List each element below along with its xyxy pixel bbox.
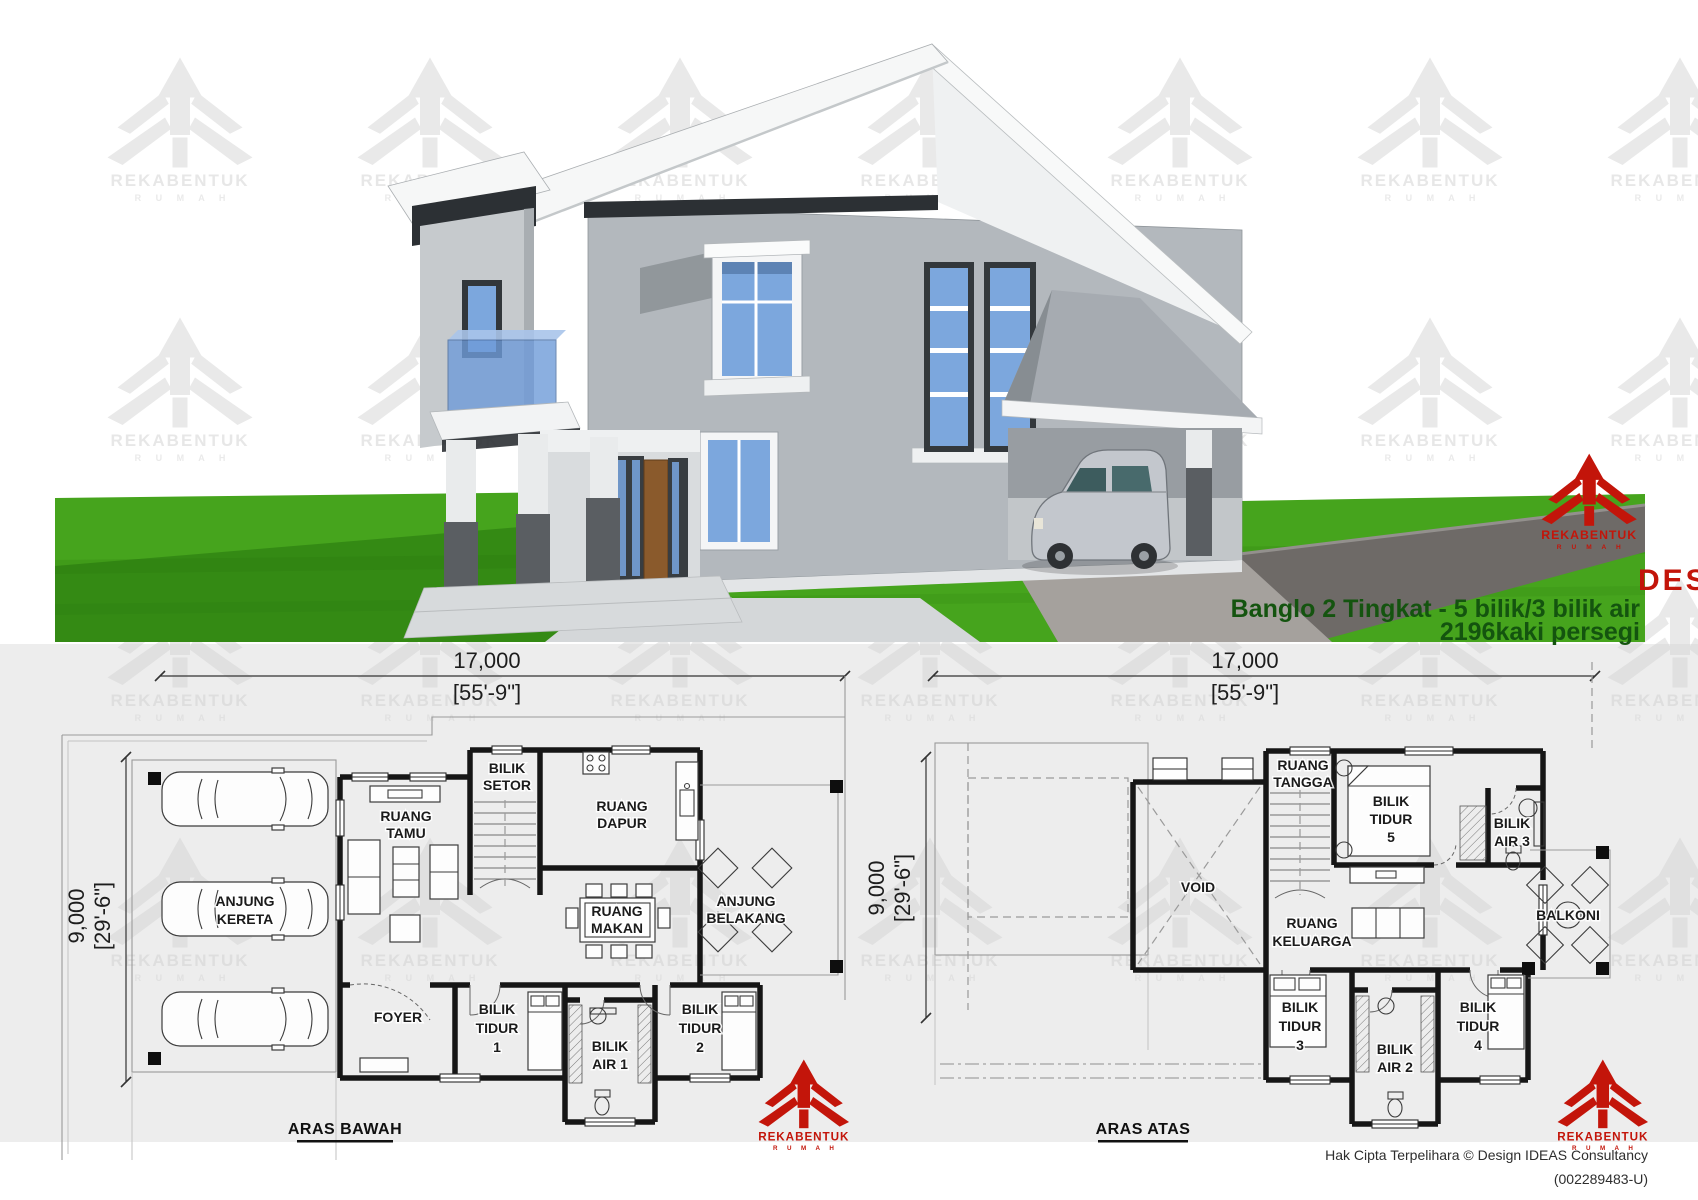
dim-depth-ft: [29'-6"] [890,854,915,922]
svg-text:TANGGA: TANGGA [1273,774,1333,790]
entrance-porch [404,430,742,638]
svg-text:5: 5 [1387,829,1395,845]
svg-text:TIDUR: TIDUR [1457,1018,1500,1034]
ground-title-underline [297,1140,393,1143]
room-bilik-air-1: BILIK [592,1038,629,1054]
room-ruang-dapur: RUANG [596,798,647,814]
front-door [644,460,668,580]
room-ruang-makan: RUANG [591,903,642,919]
svg-text:3: 3 [1296,1037,1304,1053]
dim-width-ft: [55'-9"] [453,680,521,705]
svg-text:BELAKANG: BELAKANG [706,910,785,926]
svg-text:MAKAN: MAKAN [591,920,643,936]
svg-text:TIDUR: TIDUR [679,1020,722,1036]
svg-text:TIDUR: TIDUR [476,1020,519,1036]
svg-text:KELUARGA: KELUARGA [1272,933,1351,949]
svg-text:AIR 2: AIR 2 [1377,1059,1413,1075]
svg-text:2: 2 [696,1039,704,1055]
bedroom2-bed [722,992,756,1070]
copyright-line2: (002289483-U) [1554,1171,1648,1187]
design-label: DESIGN [1638,564,1698,597]
render-area-text: 2196kaki persegi [1440,618,1640,646]
dim-width-ft: [55'-9"] [1211,680,1279,705]
car-plan-3 [162,988,328,1050]
room-bilik-tidur-3: BILIK [1282,999,1319,1015]
dim-width-mm: 17,000 [453,648,520,673]
car-plan-1 [162,768,328,830]
carport-pillar-stone [1186,468,1212,556]
room-ruang-tangga: RUANG [1277,757,1328,773]
design-sheet: REKABENTUK R U M A H REKABENTUK R U M A … [0,0,1698,1200]
room-bilik-tidur-5: BILIK [1373,793,1410,809]
room-ruang-keluarga: RUANG [1286,915,1337,931]
lower-window [700,432,778,550]
upper-plan-title: ARAS ATAS [1096,1121,1191,1138]
wardrobe [1460,806,1486,860]
room-foyer: FOYER [374,1009,422,1025]
dim-depth-ft: [29'-6"] [90,882,115,950]
dim-width-mm: 17,000 [1211,648,1278,673]
tv-cabinet [1352,908,1424,938]
svg-text:4: 4 [1474,1037,1482,1053]
room-bilik-tidur-2: BILIK [682,1001,719,1017]
copyright-line1: Hak Cipta Terpelihara © Design IDEAS Con… [1325,1147,1648,1163]
room-bilik-air-3: BILIK [1494,815,1531,831]
svg-text:TAMU: TAMU [386,825,425,841]
balcony-glass [448,330,566,414]
upper-title-underline [1098,1140,1188,1143]
svg-text:TIDUR: TIDUR [1370,811,1413,827]
design-code-title: DESIGN D248 [1638,557,1698,599]
svg-text:KERETA: KERETA [217,911,274,927]
room-bilik-setor: BILIK [489,760,526,776]
foyer-cabinet [360,1058,408,1072]
svg-text:SETOR: SETOR [483,777,531,793]
room-ruang-tamu: RUANG [380,808,431,824]
room-bilik-air-2: BILIK [1377,1041,1414,1057]
room-void: VOID [1181,879,1215,895]
svg-text:AIR 1: AIR 1 [592,1056,628,1072]
bedroom1-bed [528,992,562,1070]
svg-text:AIR 3: AIR 3 [1494,833,1530,849]
svg-text:TIDUR: TIDUR [1279,1018,1322,1034]
room-bilik-tidur-4: BILIK [1460,999,1497,1015]
room-anjung-kereta: ANJUNG [215,893,274,909]
carport-pillar-top [1186,430,1212,470]
carport [1008,428,1242,575]
car-plan-2 [162,878,328,940]
dim-depth-mm: 9,000 [864,860,889,915]
room-anjung-belakang: ANJUNG [716,893,775,909]
svg-text:DAPUR: DAPUR [597,815,647,831]
ground-plan-title: ARAS BAWAH [288,1121,402,1138]
room-balkoni: BALKONI [1536,907,1600,923]
room-bilik-tidur-1: BILIK [479,1001,516,1017]
svg-text:1: 1 [493,1039,501,1055]
